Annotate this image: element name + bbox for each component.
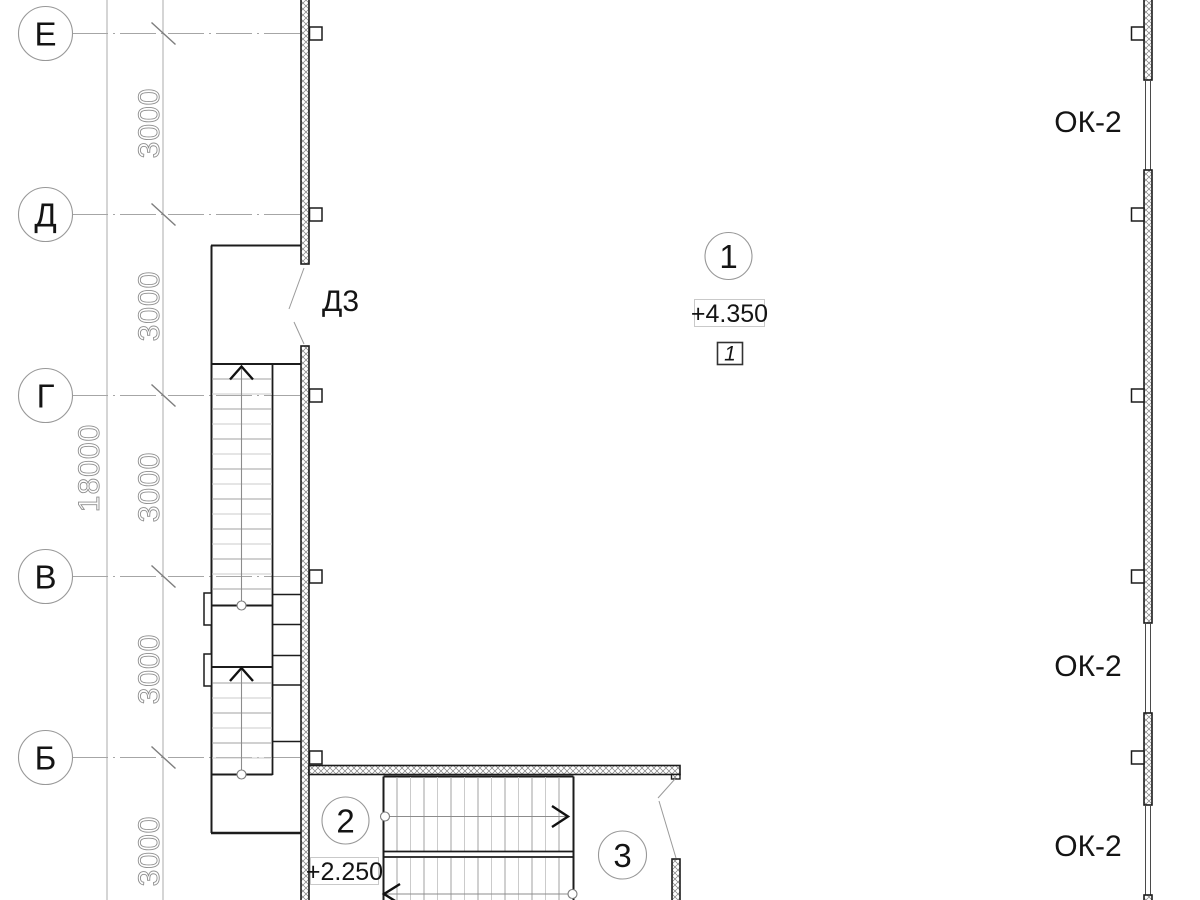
axis-bubbles: Е Д Г В Б	[19, 7, 73, 785]
wall-pilaster-1	[204, 593, 212, 625]
left-wall-lower-segment	[301, 346, 309, 900]
walk-line-start-post-2	[237, 770, 246, 779]
door-leader-lines	[289, 268, 304, 344]
window-label-2: ОК-2	[1054, 650, 1122, 683]
window-1	[1146, 80, 1151, 170]
walk-line-start-post	[237, 601, 246, 610]
axis-label-g: Г	[37, 378, 55, 415]
bottom-walk-post-2	[568, 890, 577, 899]
floor-plan-canvas: Е Д Г В Б 3000 3000 3000 3000 3000 18000	[0, 0, 1200, 900]
stairwell	[204, 246, 301, 834]
bottom-wall-end-return	[672, 775, 681, 780]
bay-dim-label-5: 3000	[133, 816, 166, 887]
bay-dim-label-2: 3000	[133, 271, 166, 342]
right-wall-segment-3	[1144, 895, 1152, 900]
left-direction-arrow	[384, 884, 400, 900]
position-number-2: 2	[336, 803, 354, 840]
window-2	[1146, 623, 1151, 713]
duct-dividers	[273, 595, 302, 742]
bottom-upper-flight-treads	[397, 777, 559, 851]
wall-pilaster-2	[204, 654, 212, 686]
dimension-texts: 3000 3000 3000 3000 3000 18000	[73, 88, 166, 887]
axis-label-e: Е	[34, 16, 56, 53]
exterior-wall-right: ОК-2 ОК-2 ОК-2	[1054, 0, 1152, 900]
overall-dim-label: 18000	[73, 424, 106, 512]
bottom-stair	[381, 777, 578, 900]
bay-dim-label-1: 3000	[133, 88, 166, 159]
window-label-3: ОК-2	[1054, 830, 1122, 863]
bottom-door-leader-lines	[658, 779, 676, 858]
bay-dim-label-3: 3000	[133, 452, 166, 523]
bottom-wall-stub	[672, 859, 680, 900]
window-3	[1146, 805, 1151, 895]
bottom-walk-post-1	[381, 812, 390, 821]
right-wall-ties	[1132, 27, 1145, 764]
axis-label-b: Б	[35, 740, 57, 777]
column-grid: Е Д Г В Б 3000 3000 3000 3000 3000 18000	[19, 0, 302, 900]
stair-flight-upper	[211, 367, 273, 611]
left-wall-upper-segment	[301, 0, 309, 264]
position-markers: 1 +4.350 1 2 +2.250 3	[306, 233, 768, 887]
position-number-1: 1	[719, 238, 737, 275]
bay-dim-label-4: 3000	[133, 634, 166, 705]
floor-plan-drawing: Е Д Г В Б 3000 3000 3000 3000 3000 18000	[0, 0, 1200, 900]
left-wall-ties	[310, 27, 323, 764]
axis-label-v: В	[34, 559, 56, 596]
position-number-3: 3	[613, 837, 631, 874]
bottom-wall-band	[309, 766, 680, 775]
elevation-label-lower: +2.250	[306, 858, 383, 886]
axis-label-d: Д	[34, 197, 56, 234]
right-wall-segment-2	[1144, 170, 1152, 623]
right-wall-segment-1	[1144, 0, 1152, 80]
elevation-label-upper: +4.350	[691, 300, 768, 328]
window-label-1: ОК-2	[1054, 106, 1122, 139]
right-wall-pier	[1144, 713, 1152, 805]
stair-number-label: 1	[724, 343, 736, 366]
door-label: Д3	[322, 285, 359, 318]
stair-flight-lower	[211, 667, 273, 779]
